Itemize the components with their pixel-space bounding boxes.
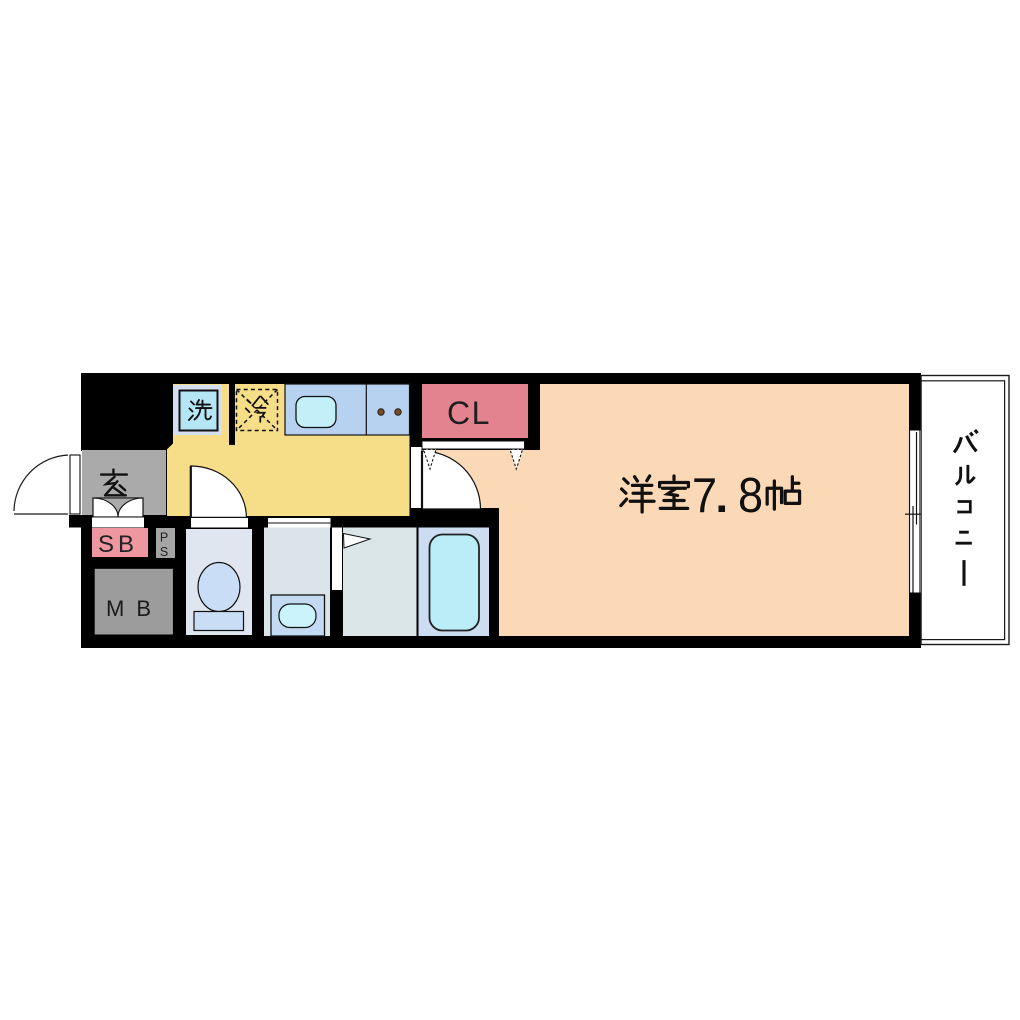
svg-text:SB: SB (98, 531, 138, 558)
svg-text:S: S (160, 545, 168, 559)
svg-text:MB: MB (106, 596, 163, 621)
svg-text:8: 8 (738, 467, 763, 522)
svg-text:7: 7 (692, 467, 717, 522)
svg-text:P: P (160, 531, 168, 545)
svg-text:CL: CL (447, 395, 491, 431)
